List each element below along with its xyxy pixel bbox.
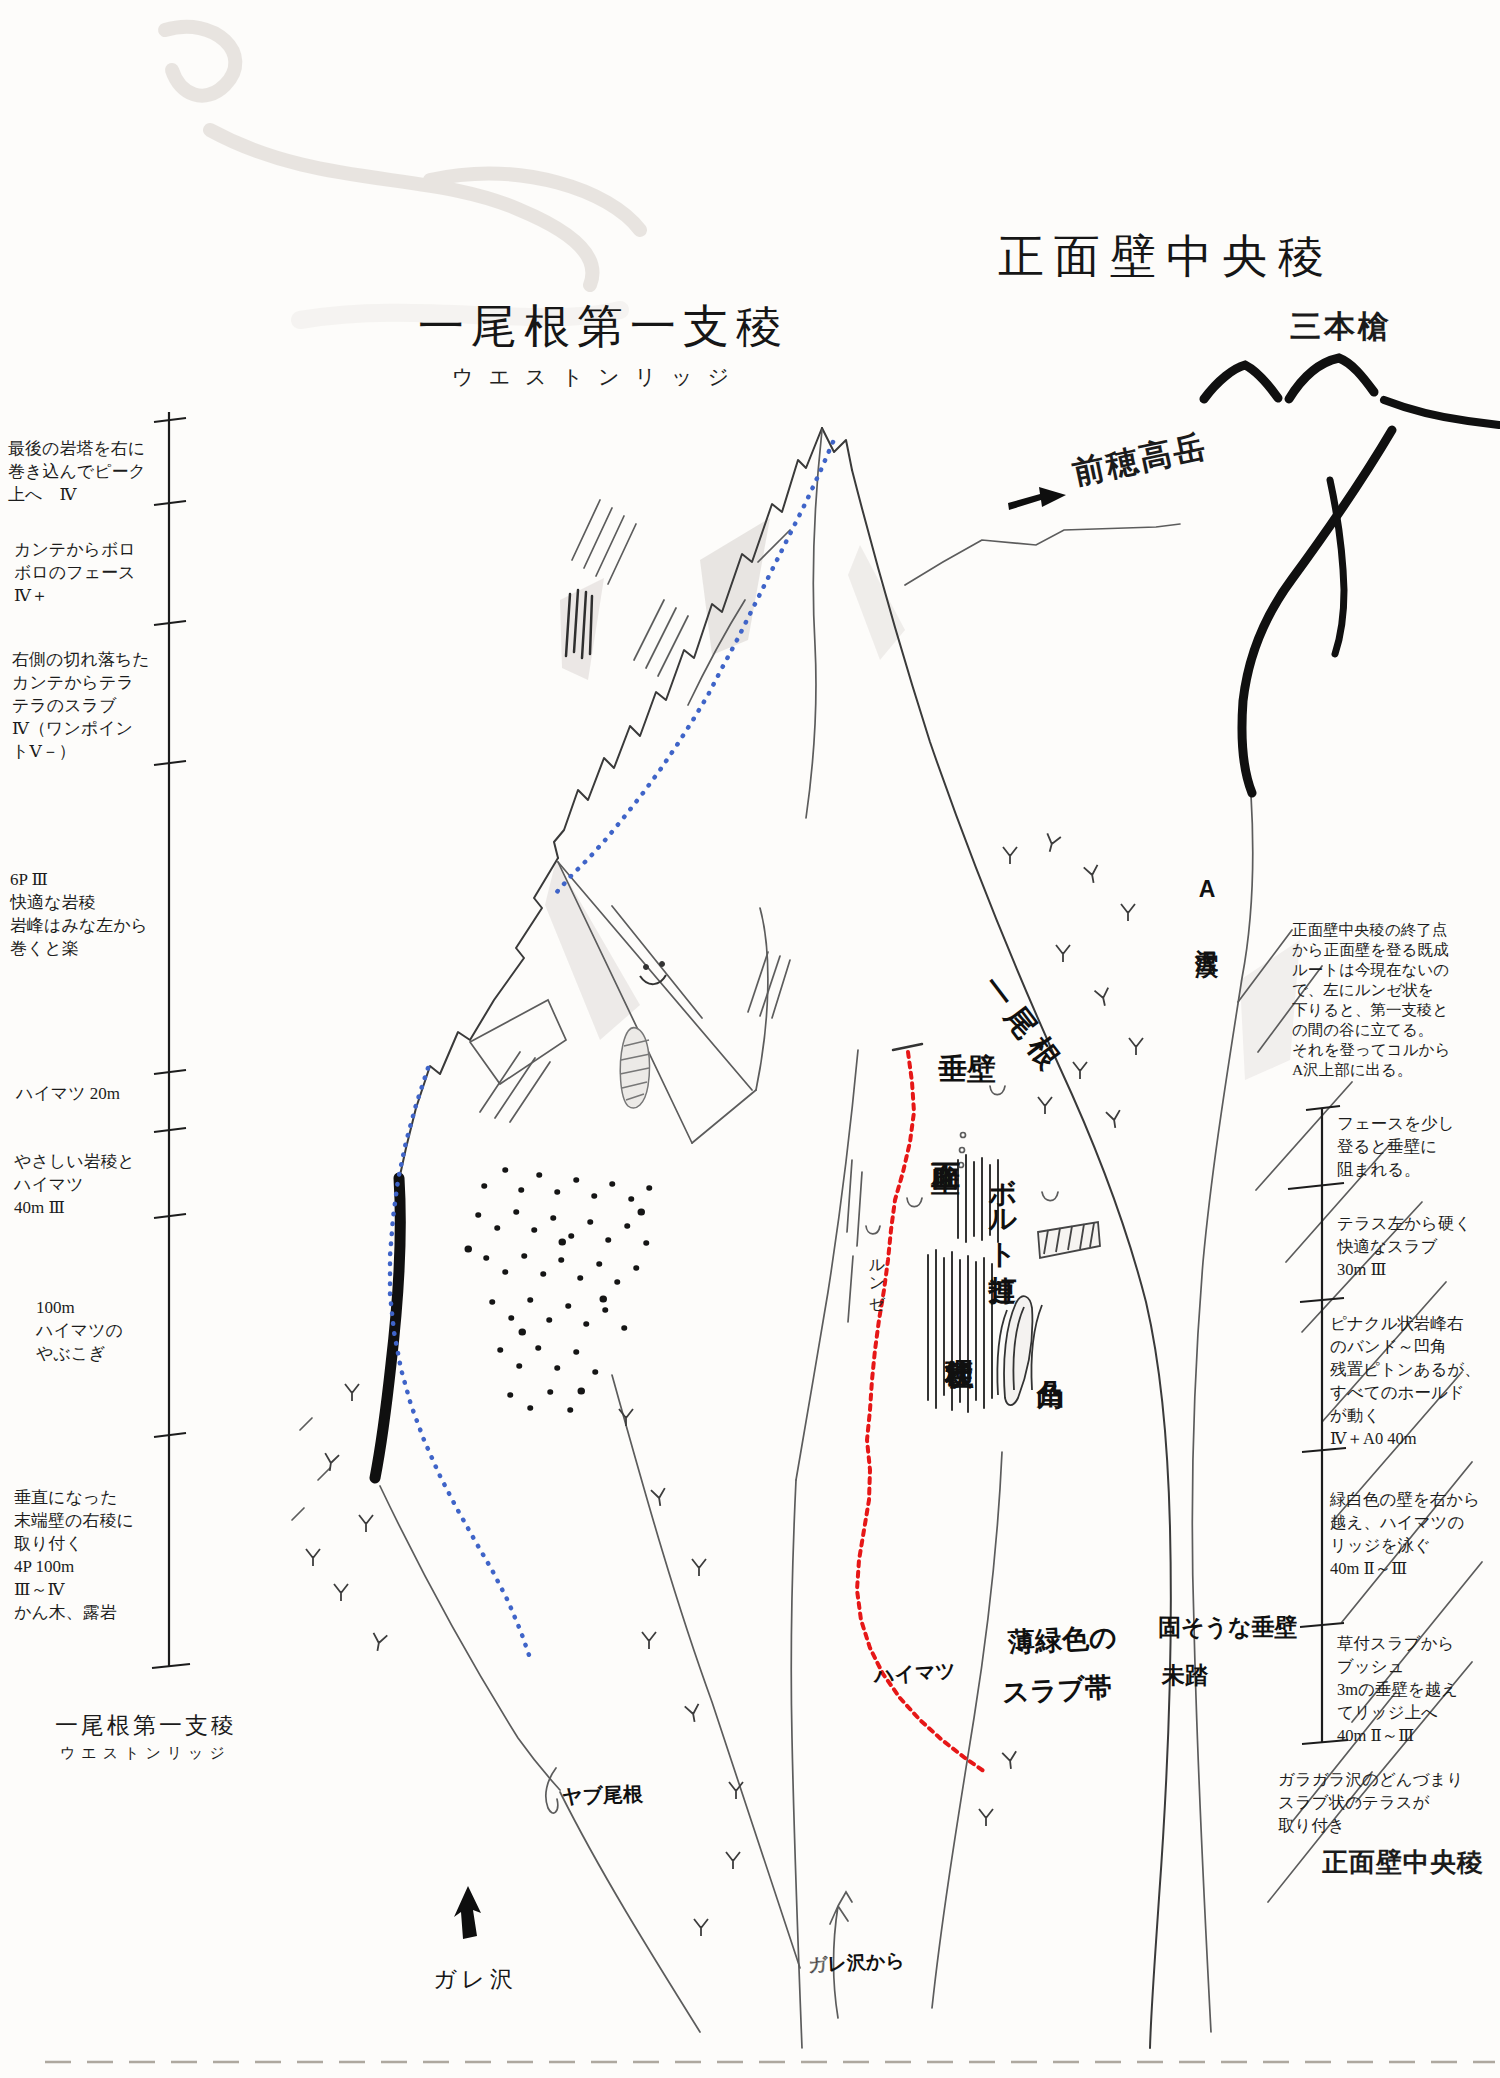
a-sawa-snow-gully-label: A 沢雪渓 bbox=[1192, 876, 1223, 938]
hand-drawn-climbing-topo: 一尾根第一支稜 ウエストンリッジ 正面壁中央稜 三本槍 前穂高岳 最後の岩塔を右… bbox=[0, 0, 1500, 2078]
pitch-note-right-2: テラス左から硬く 快適なスラブ 30m Ⅲ bbox=[1337, 1212, 1471, 1281]
pitch-note-left-2: カンテからボロ ボロのフェース Ⅳ＋ bbox=[14, 538, 136, 607]
haimatsu-label: ハイマツ bbox=[873, 1657, 957, 1690]
banded-pillar-doodle bbox=[620, 1028, 650, 1108]
weston-footer-title: 一尾根第一支稜 bbox=[55, 1710, 237, 1741]
hatched-block bbox=[1038, 1222, 1100, 1258]
runze-label: ルンゼ bbox=[866, 1248, 887, 1303]
three-spears-peak-right bbox=[1289, 358, 1374, 399]
unclimbed-label: 未踏 bbox=[1162, 1660, 1208, 1691]
weston-route-upper bbox=[556, 442, 833, 893]
scan-smudges bbox=[165, 27, 640, 320]
gare-sawa-up-arrow-icon bbox=[454, 1886, 481, 1939]
convex-corner-shape bbox=[997, 1296, 1042, 1405]
pitch-note-left-8: 垂直になった 末端壁の右稜に 取り付く 4P 100m Ⅲ～Ⅳ かん木、露岩 bbox=[14, 1486, 134, 1624]
pitch-note-left-5: ハイマツ 20m bbox=[16, 1082, 120, 1105]
solid-wall-label: 固そうな垂壁 bbox=[1158, 1612, 1298, 1643]
pitch-note-right-1: フェースを少し 登ると垂壁に 阻まれる。 bbox=[1337, 1112, 1454, 1181]
pale-green-slab-label-2: スラブ帯 bbox=[1001, 1669, 1113, 1711]
weston-ridge-subtitle: ウエストンリッジ bbox=[452, 363, 744, 391]
gare-sawa-from-label: ガレ沢から bbox=[807, 1947, 905, 1978]
bolt-ladder-label: ボルト連打 bbox=[983, 1158, 1021, 1253]
approach-note-right: ガラガラ沢のどんづまり スラブ状のテラスが 取り付き bbox=[1278, 1768, 1463, 1837]
vertical-wall-label: 垂壁 bbox=[938, 1050, 996, 1090]
pitch-note-left-6: やさしい岩稜と ハイマツ 40m Ⅲ bbox=[14, 1150, 135, 1219]
pitch-note-right-3: ピナクル状岩峰右 のバンド～凹角 残置ピトンあるが、 すべてのホールド が動く … bbox=[1330, 1312, 1481, 1450]
front-wall-footer-title: 正面壁中央稜 bbox=[1322, 1845, 1484, 1880]
pencil-shading bbox=[545, 518, 1300, 1080]
three-spears-peak-left bbox=[1204, 365, 1278, 399]
pale-green-slab-label-1: 薄緑色の bbox=[1007, 1619, 1117, 1661]
scree-dots bbox=[468, 1170, 650, 1410]
front-wall-ridge-title: 正面壁中央稜 bbox=[998, 226, 1334, 288]
maehotaka-arrow-icon bbox=[1008, 487, 1066, 510]
three-spears-label: 三本槍 bbox=[1290, 306, 1392, 348]
weston-ridge-title: 一尾根第一支稜 bbox=[418, 296, 789, 358]
left-ridge-emphasis bbox=[375, 1178, 400, 1478]
pitch-note-left-4: 6P Ⅲ 快適な岩稜 岩峰はみな左から 巻くと楽 bbox=[10, 868, 148, 960]
weston-footer-subtitle: ウエストンリッジ bbox=[60, 1744, 231, 1763]
pitch-scale-left bbox=[152, 412, 190, 1668]
pitch-note-left-1: 最後の岩塔を右に 巻き込んでピーク 上へ Ⅳ bbox=[8, 437, 146, 506]
pitch-note-left-3: 右側の切れ落ちた カンテからテラ テラのスラブ Ⅳ（ワンポイン トⅤ－） bbox=[12, 648, 150, 763]
pitch-note-right-5: 草付スラブから ブッシュ 3mの垂壁を越え てリッジ上へ 40m Ⅱ～Ⅲ bbox=[1337, 1632, 1458, 1747]
pitch-note-left-7: 100m ハイマツの やぶこぎ bbox=[36, 1296, 123, 1365]
weston-route-lower bbox=[390, 1068, 530, 1658]
front-wall-intro-note: 正面壁中央稜の終了点 から正面壁を登る既成 ルートは今現在ないの で、左にルンゼ… bbox=[1292, 920, 1498, 1080]
three-spears-shoulder bbox=[1384, 400, 1499, 425]
yabu-ridge-label: ヤブ尾根 bbox=[562, 1781, 644, 1811]
gare-sawa-label: ガレ沢 bbox=[433, 1964, 518, 1995]
pitch-note-right-4: 緑白色の壁を右から 越え、ハイマツの リッジを泳ぐ 40m Ⅱ～Ⅲ bbox=[1330, 1488, 1480, 1580]
weston-route-line bbox=[390, 442, 833, 1658]
couloir-edge-thick bbox=[1242, 430, 1392, 793]
